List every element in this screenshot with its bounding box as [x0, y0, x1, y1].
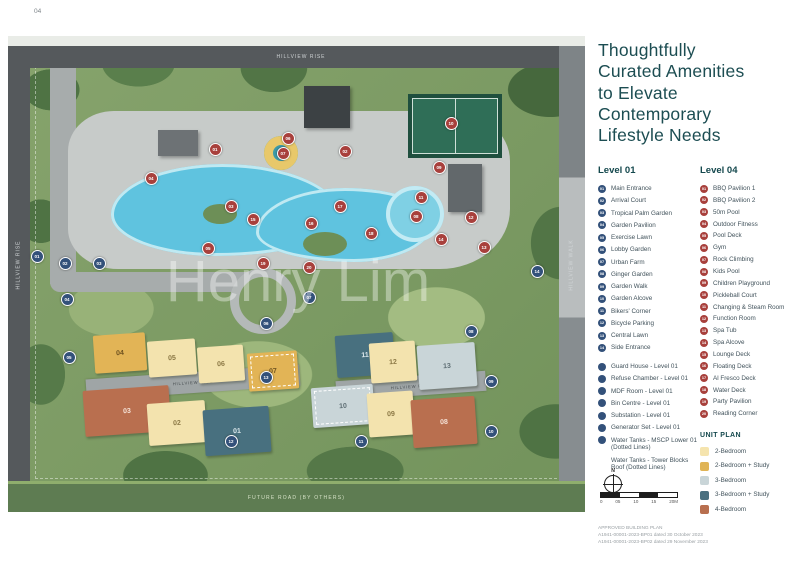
- title-line: Thoughtfully: [598, 40, 744, 61]
- legend-label: MDF Room - Level 01: [611, 388, 673, 396]
- legend-label: Water Tanks - MSCP Lower 01 (Dotted Line…: [611, 437, 697, 452]
- map-marker-red: 09: [433, 161, 446, 174]
- future-road-strip: FUTURE ROAD (BY OTHERS): [8, 481, 585, 512]
- map-marker-navy: 13: [260, 371, 273, 384]
- legend-badge: [598, 456, 606, 464]
- map-marker-red: 18: [365, 227, 378, 240]
- unit-label: 4-Bedroom: [715, 506, 746, 514]
- legend-label: Garden Alcove: [611, 295, 652, 303]
- map-marker-red: 17: [334, 200, 347, 213]
- scale-tick: 15: [651, 499, 656, 504]
- legend-item: 05Exercise Lawn: [598, 234, 698, 242]
- legend-badge: 10: [700, 291, 708, 299]
- legend-label: Main Entrance: [611, 185, 652, 193]
- legend-item: 10Pickleball Court: [700, 292, 800, 300]
- legend-item: 17Al Fresco Deck: [700, 375, 800, 383]
- legend-badge: 16: [700, 362, 708, 370]
- legend-item: 06Lobby Garden: [598, 246, 698, 254]
- map-marker-navy: 01: [31, 250, 44, 263]
- legend-badge: 09: [598, 283, 606, 291]
- legend-item: 04Garden Pavilion: [598, 222, 698, 230]
- approval-line: A1941-00001-2023-BP01 dated 30 October 2…: [598, 533, 708, 540]
- legend-badge: 08: [700, 268, 708, 276]
- legend-item: 07Urban Farm: [598, 259, 698, 267]
- legend-label: Al Fresco Deck: [713, 375, 756, 383]
- legend-item: 11Changing & Steam Room: [700, 304, 800, 312]
- tower-block: 12: [369, 340, 418, 383]
- unit-label: 3-Bedroom: [715, 477, 746, 485]
- legend-item: Generator Set - Level 01: [598, 424, 698, 432]
- legend-badge: 09: [700, 279, 708, 287]
- legend-item: 0350m Pool: [700, 209, 800, 217]
- legend-badge: [598, 424, 606, 432]
- legend-badge: 07: [598, 258, 606, 266]
- legend-item: 13Spa Tub: [700, 327, 800, 335]
- tower-block: 09: [367, 390, 416, 437]
- future-road-label: FUTURE ROAD (BY OTHERS): [248, 495, 345, 501]
- legend-item: 14Spa Alcove: [700, 339, 800, 347]
- map-marker-red: 14: [435, 233, 448, 246]
- scale-bar: 005101520M: [600, 492, 678, 504]
- map-marker-navy: 02: [59, 257, 72, 270]
- legend-badge: 13: [598, 332, 606, 340]
- legend-label: Substation - Level 01: [611, 412, 670, 420]
- unit-plan-item: 4-Bedroom: [700, 505, 795, 514]
- legend-item: 15Lounge Deck: [700, 351, 800, 359]
- map-marker-red: 06: [282, 132, 295, 145]
- road-right-label: HILLVIEW WALK: [569, 239, 575, 290]
- legend-badge: 04: [598, 221, 606, 229]
- approval-line: A1941-00001-2023-BP02 dated 29 November …: [598, 540, 708, 547]
- legend-badge: 13: [700, 327, 708, 335]
- unit-plan-item: 3-Bedroom: [700, 476, 795, 485]
- legend-label: Tropical Palm Garden: [611, 210, 672, 218]
- legend-label: Bikers' Corner: [611, 308, 651, 316]
- map-marker-navy: 06: [260, 317, 273, 330]
- legend-badge: [598, 375, 606, 383]
- unit-color-swatch: [700, 476, 709, 485]
- unit-plan-item: 2-Bedroom + Study: [700, 462, 795, 471]
- legend-item: 09Garden Walk: [598, 283, 698, 291]
- legend-badge: [598, 387, 606, 395]
- tower-block: 08: [410, 396, 477, 448]
- legend-label: Children Playground: [713, 280, 770, 288]
- legend-badge: [598, 399, 606, 407]
- legend-item: 19Party Pavilion: [700, 398, 800, 406]
- legend-badge: 12: [598, 319, 606, 327]
- title-line: to Elevate: [598, 83, 744, 104]
- legend-label: Party Pavilion: [713, 398, 752, 406]
- legend-item: Water Tanks - MSCP Lower 01 (Dotted Line…: [598, 437, 698, 452]
- facility-building: [448, 164, 482, 212]
- map-marker-red: 20: [303, 261, 316, 274]
- unit-label: 3-Bedroom + Study: [715, 491, 769, 499]
- map-marker-red: 15: [247, 213, 260, 226]
- legend-badge: 05: [700, 232, 708, 240]
- legend-label: Central Lawn: [611, 332, 648, 340]
- map-marker-red: 12: [465, 211, 478, 224]
- legend-item: 16Floating Deck: [700, 363, 800, 371]
- legend-badge: 03: [700, 208, 708, 216]
- unit-color-swatch: [700, 447, 709, 456]
- scale-ticks: 005101520M: [600, 499, 678, 504]
- legend-item: 01Main Entrance: [598, 185, 698, 193]
- legend-label: Garden Pavilion: [611, 222, 656, 230]
- legend-label: Garden Walk: [611, 283, 648, 291]
- legend-label: Spa Tub: [713, 327, 736, 335]
- legend-label: Pickleball Court: [713, 292, 757, 300]
- legend-label: Bin Centre - Level 01: [611, 400, 670, 408]
- legend-badge: 02: [700, 196, 708, 204]
- approval-line: APPROVED BUILDING PLAN: [598, 526, 708, 533]
- legend-label: Ginger Garden: [611, 271, 653, 279]
- legend-badge: 04: [700, 220, 708, 228]
- legend-badge: 19: [700, 398, 708, 406]
- legend-badge: 18: [700, 386, 708, 394]
- tower-block: 13: [417, 342, 478, 390]
- legend-badge: 06: [700, 244, 708, 252]
- legend-item: Guard House - Level 01: [598, 363, 698, 371]
- legend-label: Urban Farm: [611, 259, 645, 267]
- legend-item: 02BBQ Pavilion 2: [700, 197, 800, 205]
- legend-label: Guard House - Level 01: [611, 363, 678, 371]
- legend-label: Pool Deck: [713, 232, 742, 240]
- site-plan-map: HILLVIEW RISE HILLVIEW RISE 040506070302…: [8, 36, 585, 512]
- internal-driveway-horizontal: [50, 272, 260, 292]
- legend-item: 07Rock Climbing: [700, 256, 800, 264]
- legend-badge: 11: [598, 307, 606, 315]
- legend-label: Exercise Lawn: [611, 234, 652, 242]
- legend-badge: 14: [700, 339, 708, 347]
- clubhouse-building: [304, 86, 350, 128]
- legend-badge: 17: [700, 374, 708, 382]
- unit-plan-legend: UNIT PLAN 2-Bedroom2-Bedroom + Study3-Be…: [700, 432, 795, 520]
- legend-item: 01BBQ Pavilion 1: [700, 185, 800, 193]
- map-marker-navy: 05: [63, 351, 76, 364]
- approval-note: APPROVED BUILDING PLANA1941-00001-2023-B…: [598, 526, 708, 547]
- scale-tick: 10: [633, 499, 638, 504]
- legend-label: Lobby Garden: [611, 246, 651, 254]
- unit-plan-heading: UNIT PLAN: [700, 432, 795, 439]
- scale-tick: 20M: [669, 499, 678, 504]
- level01-column: Level 01 01Main Entrance02Arrival Court0…: [598, 165, 698, 477]
- page-number-left: 04: [34, 8, 41, 15]
- road-top-label: HILLVIEW RISE: [276, 54, 325, 60]
- map-marker-red: 13: [478, 241, 491, 254]
- legend-badge: 10: [598, 295, 606, 303]
- map-marker-red: 16: [305, 217, 318, 230]
- legend-item: 11Bikers' Corner: [598, 308, 698, 316]
- legend-badge: [598, 412, 606, 420]
- legend-item: 06Gym: [700, 244, 800, 252]
- map-marker-navy: 04: [61, 293, 74, 306]
- unit-color-swatch: [700, 462, 709, 471]
- road-hillview-walk: HILLVIEW WALK: [559, 46, 585, 484]
- unit-label: 2-Bedroom + Study: [715, 462, 769, 470]
- legend-item: 02Arrival Court: [598, 197, 698, 205]
- compass-icon: [604, 475, 622, 493]
- legend-item: 20Reading Corner: [700, 410, 800, 418]
- legend-item: 18Water Deck: [700, 387, 800, 395]
- legend-item: 13Central Lawn: [598, 332, 698, 340]
- legend-item: Bin Centre - Level 01: [598, 400, 698, 408]
- tower-block: 02: [147, 400, 208, 446]
- legend-item: 09Children Playground: [700, 280, 800, 288]
- level04-column: Level 04 01BBQ Pavilion 102BBQ Pavilion …: [700, 165, 800, 422]
- map-marker-red: 07: [277, 147, 290, 160]
- legend-label: Refuse Chamber - Level 01: [611, 375, 688, 383]
- legend-badge: [598, 436, 606, 444]
- map-marker-navy: 12: [225, 435, 238, 448]
- map-marker-red: 02: [339, 145, 352, 158]
- legend-label: Function Room: [713, 315, 756, 323]
- legend-item: 03Tropical Palm Garden: [598, 210, 698, 218]
- legend-item: 04Outdoor Fitness: [700, 221, 800, 229]
- map-marker-navy: 03: [93, 257, 106, 270]
- legend-panel: ThoughtfullyCurated Amenitiesto ElevateC…: [595, 0, 795, 563]
- map-marker-red: 05: [202, 242, 215, 255]
- level01-heading: Level 01: [598, 165, 698, 176]
- road-hillview-rise-left: HILLVIEW RISE: [8, 46, 30, 484]
- scale-tick: 05: [615, 499, 620, 504]
- legend-label: Arrival Court: [611, 197, 646, 205]
- unit-plan-list: 2-Bedroom2-Bedroom + Study3-Bedroom3-Bed…: [700, 447, 795, 514]
- map-marker-red: 11: [415, 191, 428, 204]
- map-marker-navy: 10: [485, 425, 498, 438]
- legend-badge: 11: [700, 303, 708, 311]
- legend-label: BBQ Pavilion 2: [713, 197, 755, 205]
- compass: N: [601, 468, 625, 493]
- map-marker-navy: 07: [303, 291, 316, 304]
- legend-label: Water Deck: [713, 387, 746, 395]
- map-marker-navy: 09: [485, 375, 498, 388]
- map-marker-red: 10: [445, 117, 458, 130]
- road-hillview-rise-top: HILLVIEW RISE: [30, 46, 572, 68]
- map-marker-red: 01: [209, 143, 222, 156]
- legend-badge: 06: [598, 246, 606, 254]
- legend-badge: 07: [700, 256, 708, 264]
- legend-badge: 15: [700, 351, 708, 359]
- legend-label: Changing & Steam Room: [713, 304, 784, 312]
- legend-badge: [598, 363, 606, 371]
- legend-item: 05Pool Deck: [700, 232, 800, 240]
- tower-block: 01: [202, 406, 271, 456]
- legend-label: Kids Pool: [713, 268, 740, 276]
- legend-item: Refuse Chamber - Level 01: [598, 375, 698, 383]
- legend-label: Rock Climbing: [713, 256, 754, 264]
- legend-label: Floating Deck: [713, 363, 752, 371]
- unit-label: 2-Bedroom: [715, 448, 746, 456]
- map-marker-navy: 14: [531, 265, 544, 278]
- pool-island: [303, 232, 347, 256]
- legend-label: Lounge Deck: [713, 351, 750, 359]
- legend-badge: 01: [700, 185, 708, 193]
- legend-label: BBQ Pavilion 1: [713, 185, 755, 193]
- map-marker-navy: 11: [355, 435, 368, 448]
- legend-badge: 01: [598, 185, 606, 193]
- legend-label: Outdoor Fitness: [713, 221, 758, 229]
- tower-block: 05: [147, 338, 197, 377]
- level04-heading: Level 04: [700, 165, 800, 176]
- legend-item: 08Kids Pool: [700, 268, 800, 276]
- tower-block: 06: [197, 344, 245, 383]
- tower-block: 07: [247, 350, 300, 391]
- title-line: Curated Amenities: [598, 61, 744, 82]
- legend-item: 12Function Room: [700, 315, 800, 323]
- page-title: ThoughtfullyCurated Amenitiesto ElevateC…: [598, 40, 744, 147]
- legend-badge: 08: [598, 270, 606, 278]
- legend-item: 08Ginger Garden: [598, 271, 698, 279]
- map-marker-red: 03: [225, 200, 238, 213]
- garden-pavilion-structure: [158, 130, 198, 156]
- legend-label: 50m Pool: [713, 209, 740, 217]
- legend-badge: 03: [598, 209, 606, 217]
- title-line: Lifestyle Needs: [598, 125, 744, 146]
- legend-item: Substation - Level 01: [598, 412, 698, 420]
- map-marker-navy: 08: [465, 325, 478, 338]
- map-marker-red: 19: [257, 257, 270, 270]
- unit-color-swatch: [700, 491, 709, 500]
- legend-label: Side Entrance: [611, 344, 651, 352]
- scale-tick: 0: [600, 499, 603, 504]
- legend-badge: 20: [700, 410, 708, 418]
- legend-label: Spa Alcove: [713, 339, 745, 347]
- road-left-label: HILLVIEW RISE: [16, 240, 22, 289]
- legend-badge: 05: [598, 234, 606, 242]
- legend-badge: 12: [700, 315, 708, 323]
- tower-block: 04: [93, 332, 148, 374]
- legend-badge: 02: [598, 197, 606, 205]
- legend-badge: 14: [598, 344, 606, 352]
- legend-label: Reading Corner: [713, 410, 757, 418]
- legend-label: Bicycle Parking: [611, 320, 654, 328]
- map-marker-red: 04: [145, 172, 158, 185]
- level04-legend-list: 01BBQ Pavilion 102BBQ Pavilion 20350m Po…: [700, 185, 800, 418]
- unit-plan-item: 3-Bedroom + Study: [700, 491, 795, 500]
- legend-item: 12Bicycle Parking: [598, 320, 698, 328]
- scale-bar-graphic: [600, 492, 678, 498]
- legend-item: 10Garden Alcove: [598, 295, 698, 303]
- unit-plan-item: 2-Bedroom: [700, 447, 795, 456]
- facilities-legend-list: Guard House - Level 01Refuse Chamber - L…: [598, 363, 698, 472]
- legend-item: 14Side Entrance: [598, 344, 698, 352]
- level01-legend-list: 01Main Entrance02Arrival Court03Tropical…: [598, 185, 698, 352]
- legend-item: MDF Room - Level 01: [598, 388, 698, 396]
- title-line: Contemporary: [598, 104, 744, 125]
- map-marker-red: 08: [410, 210, 423, 223]
- unit-color-swatch: [700, 505, 709, 514]
- legend-label: Gym: [713, 244, 726, 252]
- legend-label: Generator Set - Level 01: [611, 424, 680, 432]
- tower-block: 10: [311, 384, 376, 428]
